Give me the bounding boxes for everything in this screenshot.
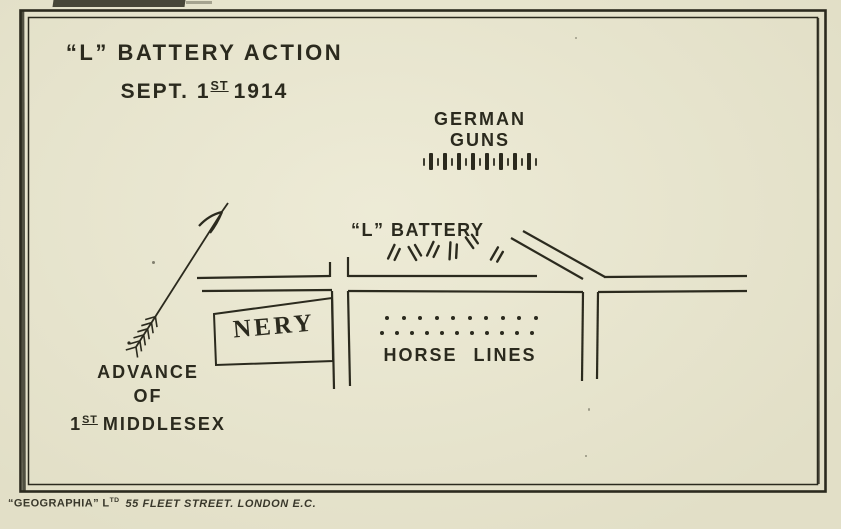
- paper-speck: [585, 455, 587, 457]
- road-diagonal-upper: [523, 231, 605, 277]
- horse-dot: [385, 316, 389, 320]
- road-main-top-east: [604, 276, 747, 277]
- title-date-superscript: ST: [211, 79, 229, 93]
- german-gun-mark: [507, 158, 509, 166]
- advance-arrow: [126, 203, 228, 358]
- german-gun-mark: [465, 158, 467, 166]
- horse-dot: [517, 316, 521, 320]
- german-gun-symbol: [471, 153, 475, 170]
- german-gun-mark: [521, 158, 523, 166]
- horse-lines-label: HORSE LINES: [380, 345, 540, 366]
- arrow-shaft: [136, 212, 222, 347]
- road-main-top-west: [197, 276, 330, 278]
- map-title-line1: “L” BATTERY ACTION: [62, 40, 347, 66]
- map-page: “L” BATTERY ACTION SEPT. 1ST1914 GERMAN …: [0, 0, 841, 529]
- german-gun-symbol: [527, 153, 531, 170]
- advance-line3: 1STMIDDLESEX: [50, 408, 246, 436]
- german-guns-line1: GERMAN: [400, 109, 560, 130]
- printer-ltd-superscript: TD: [110, 497, 120, 504]
- horse-dot: [402, 316, 406, 320]
- printer-address: 55 FLEET STREET. LONDON E.C.: [125, 498, 316, 510]
- german-guns-symbols: [423, 153, 537, 170]
- horse-dot: [380, 331, 384, 335]
- horse-dot: [440, 331, 444, 335]
- battery-gun-symbol: [409, 244, 422, 260]
- paper-speck: [575, 37, 577, 39]
- horse-dot: [435, 316, 439, 320]
- scan-smudge-top-2: [186, 1, 212, 4]
- german-gun-mark: [493, 158, 495, 166]
- arrow-tip: [221, 203, 228, 213]
- german-guns-line2: GUNS: [400, 130, 560, 151]
- horse-lines-dot-row: [385, 316, 538, 320]
- printer-name: “GEOGRAPHIA” L: [8, 498, 110, 510]
- german-gun-mark: [451, 158, 453, 166]
- l-battery-label: “L” BATTERY: [351, 220, 485, 241]
- battery-gun-symbol: [388, 245, 400, 261]
- german-gun-mark: [437, 158, 439, 166]
- german-gun-symbol: [443, 153, 447, 170]
- paper-speck: [152, 261, 155, 264]
- german-gun-symbol: [485, 153, 489, 170]
- frame-left-smudge: [23, 11, 25, 491]
- printer-caption: “GEOGRAPHIA” LTD55 FLEET STREET. LONDON …: [8, 497, 316, 510]
- horse-dot: [530, 331, 534, 335]
- frame-right-smudge: [818, 18, 819, 484]
- horse-dot: [395, 331, 399, 335]
- horse-dot: [534, 316, 538, 320]
- road-cross-west-right: [348, 291, 350, 386]
- advance-unit-superscript: ST: [82, 414, 98, 426]
- german-gun-symbol: [513, 153, 517, 170]
- german-gun-symbol: [429, 153, 433, 170]
- scan-smudge-top: [53, 0, 186, 7]
- horse-dot: [470, 331, 474, 335]
- german-gun-mark: [535, 158, 537, 166]
- road-main-bottom-west: [202, 290, 332, 291]
- horse-dot: [468, 316, 472, 320]
- road-south-east-right: [597, 292, 598, 379]
- map-title-line2: SEPT. 1ST1914: [62, 79, 347, 104]
- advance-unit-name: MIDDLESEX: [103, 414, 226, 434]
- advance-line1: ADVANCE: [50, 360, 246, 384]
- horse-dot: [451, 316, 455, 320]
- horse-dot: [501, 316, 505, 320]
- german-gun-mark: [423, 158, 425, 166]
- road-main-bottom-mid: [348, 291, 583, 292]
- title-date-year: 1914: [234, 80, 289, 103]
- horse-dot: [500, 331, 504, 335]
- advance-unit-number: 1: [70, 414, 82, 434]
- german-gun-symbol: [457, 153, 461, 170]
- title-date-prefix: SEPT. 1: [121, 80, 211, 103]
- map-title: “L” BATTERY ACTION SEPT. 1ST1914: [62, 40, 347, 104]
- horse-dot: [484, 316, 488, 320]
- battery-gun-symbol: [427, 242, 439, 258]
- advance-label: ADVANCE OF 1STMIDDLESEX: [50, 360, 246, 436]
- german-gun-mark: [479, 158, 481, 166]
- advance-line2: OF: [50, 384, 246, 408]
- german-gun-symbol: [499, 153, 503, 170]
- german-guns-label: GERMAN GUNS: [400, 109, 560, 151]
- battery-gun-symbol: [491, 247, 504, 262]
- horse-dot: [425, 331, 429, 335]
- arrow-tail-dot: [127, 341, 130, 344]
- road-main-bottom-east: [598, 291, 747, 292]
- horse-dot: [485, 331, 489, 335]
- horse-dot: [455, 331, 459, 335]
- road-south-east-left: [582, 292, 583, 381]
- paper-speck: [588, 408, 590, 411]
- horse-lines-dot-row: [380, 331, 534, 335]
- horse-dot: [515, 331, 519, 335]
- battery-gun-symbol: [450, 242, 457, 259]
- horse-dot: [410, 331, 414, 335]
- horse-dot: [418, 316, 422, 320]
